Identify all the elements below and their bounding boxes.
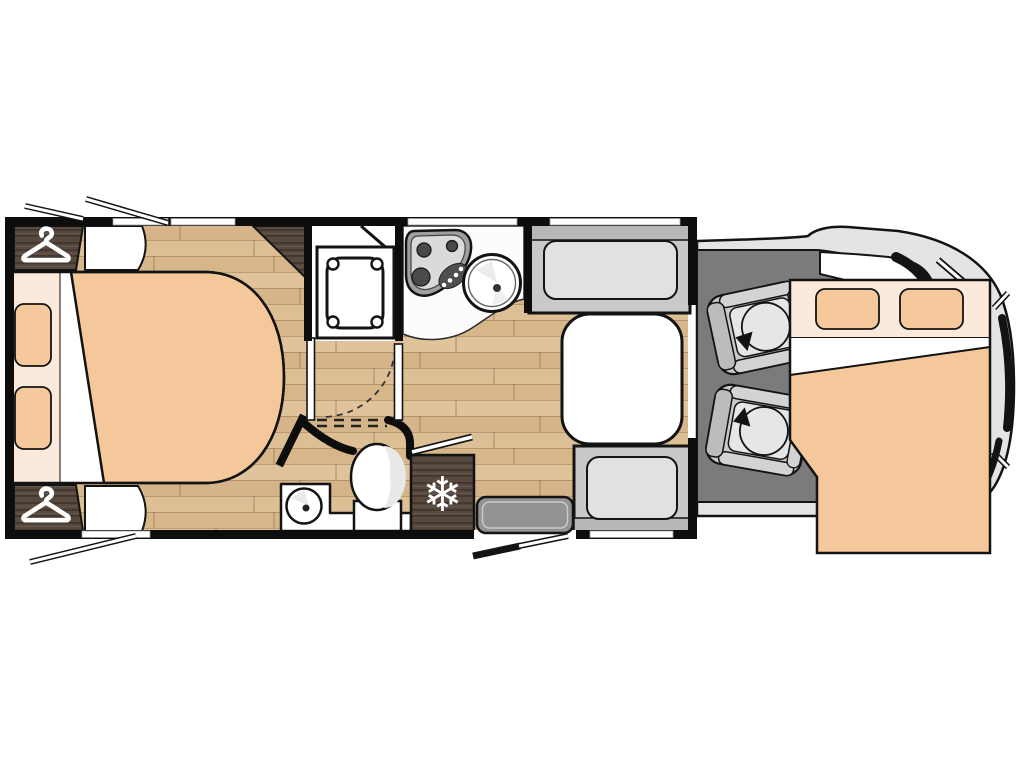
hob-knob [459, 267, 464, 272]
tray-corner [372, 259, 383, 270]
island-bed [14, 272, 284, 483]
sink-drain [493, 284, 501, 292]
snowflake-icon: ❄ [422, 467, 462, 523]
wardrobe-bottom [14, 485, 83, 531]
drop-down-bed [790, 280, 990, 553]
wall-bedroom-shower [304, 217, 312, 341]
wall-right-upper [688, 217, 697, 305]
pillow [900, 289, 963, 329]
washbasin-drain [303, 505, 310, 512]
bench-cushion [587, 457, 677, 519]
burner [417, 243, 431, 257]
dinette-bench-rear [574, 446, 691, 533]
bathroom-door-panel-left [307, 338, 315, 420]
hob-knob [454, 273, 459, 278]
floorplan-canvas: ❄ [0, 0, 1024, 768]
entry-door-leaf-dark [473, 546, 520, 556]
window [590, 531, 673, 538]
wall-kitchen-dinette [524, 217, 532, 313]
bench-backrest [529, 224, 690, 240]
motorhome-floorplan: ❄ [0, 0, 1024, 768]
wall-shower-kitchen [395, 217, 403, 341]
wall-left [5, 217, 14, 539]
tray-corner [328, 259, 339, 270]
bedside-cabinet-top [85, 226, 146, 270]
bench-cushion [544, 241, 677, 299]
dinette-bench-front [529, 224, 690, 313]
bedside-cabinet-bottom [85, 486, 146, 531]
wardrobe-top [14, 226, 83, 270]
open-window-pane-face [30, 536, 136, 562]
pillow [816, 289, 879, 329]
kitchen-sink [464, 255, 521, 312]
window [408, 219, 517, 226]
burner [447, 241, 458, 252]
bathroom-door-panel-right [395, 344, 403, 420]
tray-corner [328, 317, 339, 328]
window [550, 219, 680, 226]
window [171, 219, 235, 226]
dinette-table [562, 314, 682, 444]
dropdown-bed-duvet [790, 347, 990, 553]
hob-knob [448, 278, 453, 283]
window [82, 531, 150, 538]
island-bed-mattress [71, 272, 284, 483]
tray-corner [372, 317, 383, 328]
wall-right-lower [688, 438, 697, 539]
hob-knob [442, 283, 447, 288]
pillow [15, 387, 51, 449]
burner [412, 268, 430, 286]
pillow [15, 304, 51, 366]
